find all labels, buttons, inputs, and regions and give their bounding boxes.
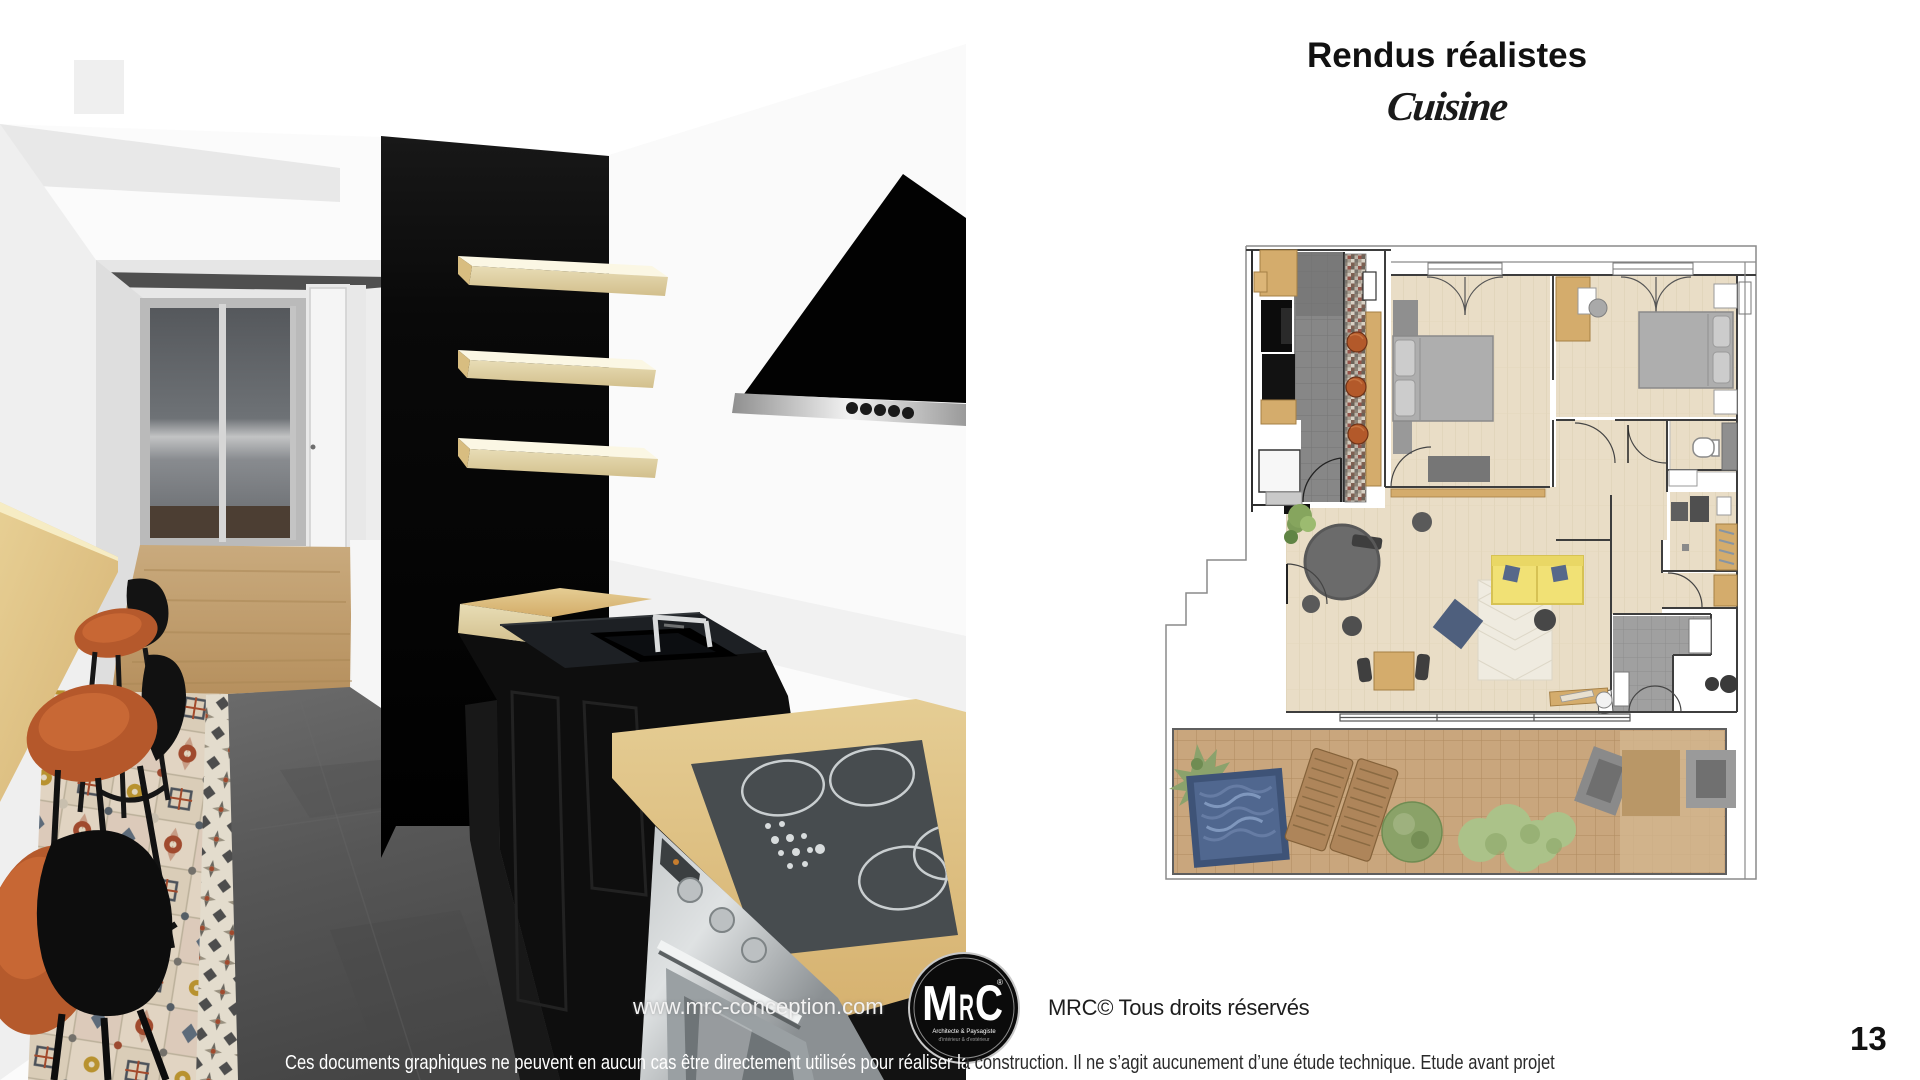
- svg-text:R: R: [959, 987, 974, 1028]
- svg-text:M: M: [922, 977, 958, 1031]
- svg-text:d'intérieur & d'extérieur: d'intérieur & d'extérieur: [938, 1037, 989, 1043]
- svg-text:®: ®: [997, 978, 1003, 987]
- svg-text:Architecte & Paysagiste: Architecte & Paysagiste: [932, 1029, 996, 1035]
